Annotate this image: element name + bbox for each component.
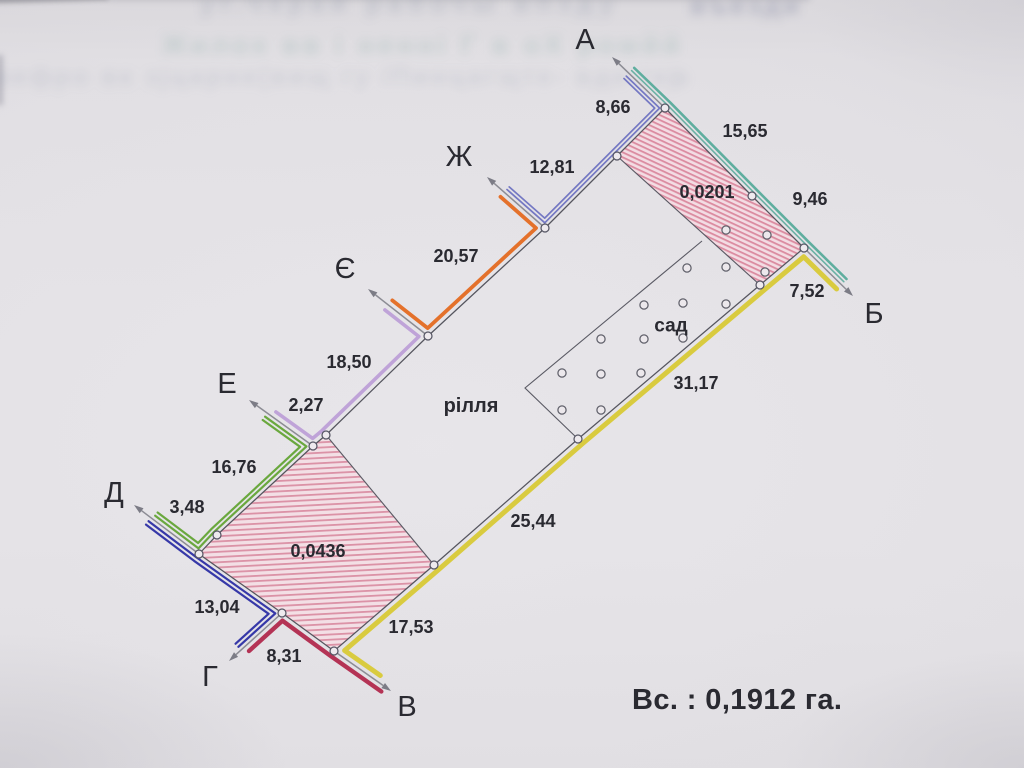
svg-text:8,31: 8,31: [266, 646, 301, 666]
svg-text:Вс. : 0,1912 га.: Вс. : 0,1912 га.: [632, 684, 842, 716]
svg-text:Д: Д: [104, 477, 124, 509]
svg-text:17,53: 17,53: [388, 617, 433, 637]
svg-text:0,0436: 0,0436: [290, 541, 345, 561]
svg-text:3,48: 3,48: [169, 497, 204, 517]
svg-text:0,0201: 0,0201: [679, 182, 734, 202]
svg-text:8,66: 8,66: [595, 97, 630, 117]
svg-text:В: В: [397, 691, 416, 723]
svg-text:25,44: 25,44: [510, 511, 555, 531]
svg-text:15,65: 15,65: [722, 121, 767, 141]
svg-text:рілля: рілля: [444, 395, 499, 417]
svg-text:7,52: 7,52: [789, 281, 824, 301]
svg-text:31,17: 31,17: [673, 373, 718, 393]
svg-text:Б: Б: [864, 298, 883, 330]
svg-text:Ж: Ж: [446, 141, 473, 173]
svg-text:2,27: 2,27: [288, 395, 323, 415]
svg-text:Е: Е: [217, 368, 236, 400]
svg-text:сад: сад: [654, 316, 687, 337]
svg-text:9,46: 9,46: [792, 189, 827, 209]
svg-text:13,04: 13,04: [194, 597, 239, 617]
svg-text:А: А: [575, 24, 595, 56]
svg-text:Г: Г: [202, 661, 218, 693]
svg-text:18,50: 18,50: [326, 352, 371, 372]
svg-text:16,76: 16,76: [211, 457, 256, 477]
svg-text:Є: Є: [335, 253, 356, 285]
svg-text:20,57: 20,57: [433, 246, 478, 266]
svg-text:12,81: 12,81: [529, 157, 574, 177]
